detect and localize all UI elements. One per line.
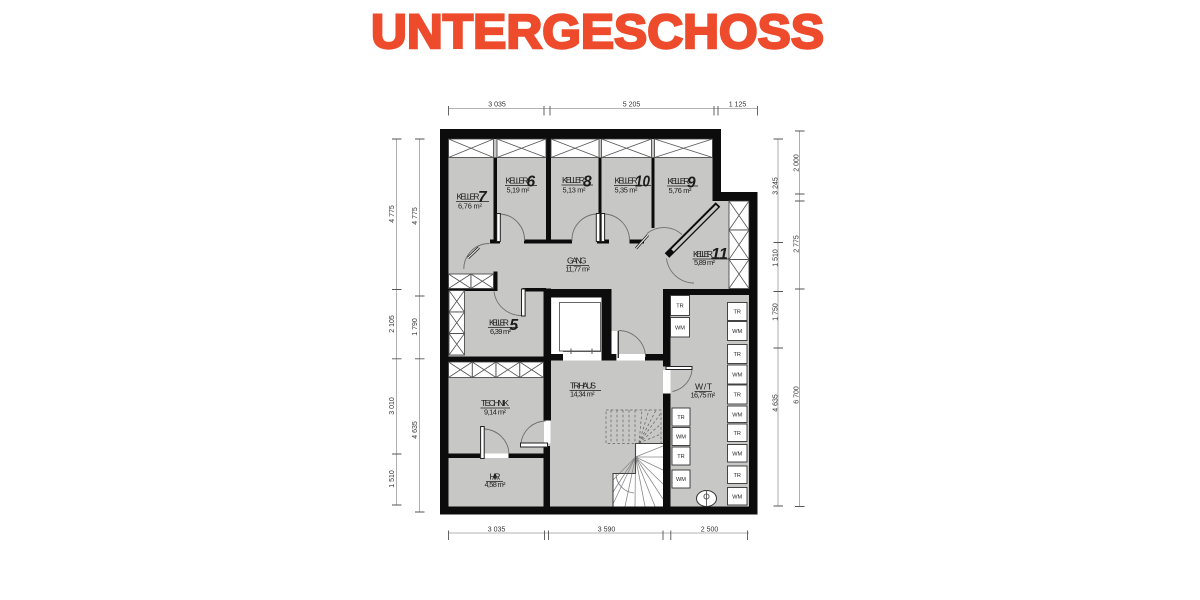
- svg-text:UNTERGESCHOSS: UNTERGESCHOSS: [371, 5, 824, 59]
- svg-text:5 205: 5 205: [623, 102, 641, 109]
- svg-text:TECHNIK: TECHNIK: [481, 398, 509, 408]
- svg-text:3 590: 3 590: [598, 527, 616, 534]
- svg-text:1 790: 1 790: [412, 318, 419, 336]
- svg-text:5,35 m²: 5,35 m²: [615, 185, 639, 194]
- svg-text:3 035: 3 035: [488, 102, 506, 109]
- svg-text:2 500: 2 500: [701, 527, 719, 534]
- svg-text:6,76 m²: 6,76 m²: [458, 202, 483, 211]
- svg-text:5,13 m²: 5,13 m²: [563, 185, 587, 194]
- svg-text:4 775: 4 775: [389, 205, 396, 223]
- svg-text:WM: WM: [675, 326, 685, 332]
- svg-text:KELLER: KELLER: [506, 176, 529, 186]
- svg-text:3 245: 3 245: [773, 177, 780, 195]
- svg-text:1 510: 1 510: [389, 470, 396, 488]
- svg-text:4,58 m²: 4,58 m²: [485, 480, 507, 489]
- svg-text:WM: WM: [732, 373, 742, 379]
- svg-text:1 510: 1 510: [773, 249, 780, 267]
- svg-text:16,75 m²: 16,75 m²: [691, 391, 716, 400]
- svg-text:5,76 m²: 5,76 m²: [669, 186, 693, 195]
- svg-text:5,19 m²: 5,19 m²: [507, 186, 531, 195]
- svg-text:1 125: 1 125: [729, 102, 747, 109]
- svg-text:TR: TR: [733, 473, 740, 479]
- svg-text:2 000: 2 000: [794, 154, 801, 172]
- svg-text:TR: TR: [733, 431, 740, 437]
- svg-text:TR: TR: [676, 304, 683, 310]
- svg-text:TR: TR: [733, 352, 740, 358]
- svg-text:WM: WM: [676, 477, 686, 483]
- svg-text:WM: WM: [732, 413, 742, 419]
- svg-text:4 635: 4 635: [773, 394, 780, 412]
- svg-text:6 700: 6 700: [794, 386, 801, 404]
- svg-text:2 775: 2 775: [794, 235, 801, 253]
- svg-text:9,14 m²: 9,14 m²: [484, 408, 507, 417]
- svg-text:TR: TR: [733, 393, 740, 399]
- svg-text:WM: WM: [732, 452, 742, 458]
- svg-text:6,39 m²: 6,39 m²: [490, 327, 512, 336]
- svg-text:11,77 m²: 11,77 m²: [566, 265, 591, 274]
- svg-text:WM: WM: [732, 329, 742, 335]
- svg-text:5,89 m²: 5,89 m²: [694, 258, 716, 267]
- svg-text:14,34 m²: 14,34 m²: [570, 389, 595, 398]
- svg-text:WM: WM: [732, 495, 742, 501]
- svg-text:3 010: 3 010: [389, 397, 396, 415]
- svg-text:4 775: 4 775: [412, 207, 419, 225]
- svg-text:TR: TR: [733, 310, 740, 316]
- svg-text:1 750: 1 750: [773, 303, 780, 321]
- svg-text:2 105: 2 105: [389, 315, 396, 333]
- svg-text:TR: TR: [677, 415, 684, 421]
- svg-text:3 035: 3 035: [488, 527, 506, 534]
- svg-text:KELLER: KELLER: [457, 192, 480, 202]
- svg-text:WM: WM: [676, 435, 686, 441]
- svg-text:TR: TR: [677, 454, 684, 460]
- svg-text:KELLER: KELLER: [562, 175, 585, 185]
- svg-text:4 635: 4 635: [412, 421, 419, 439]
